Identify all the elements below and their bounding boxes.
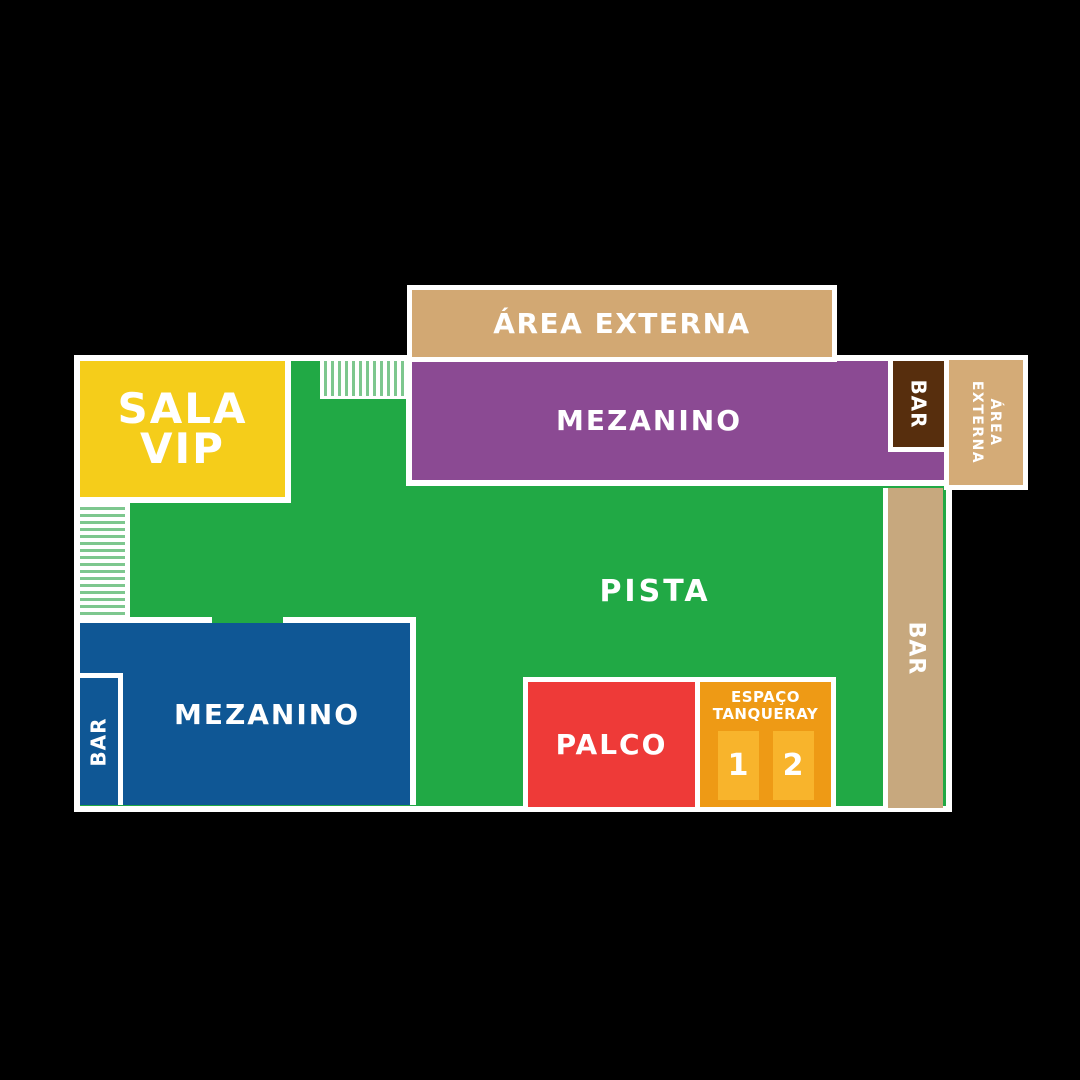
zone-bar-mezanino-label: BAR — [87, 717, 111, 766]
mezanino-lower-border-side — [410, 617, 416, 805]
espaco-booths: 1 2 — [718, 731, 814, 800]
zone-bar-mezanino: BAR — [80, 673, 123, 805]
zone-palco: PALCO — [523, 677, 700, 812]
zone-sala-vip-label-line2: VIP — [140, 429, 225, 469]
zone-area-externa-right: ÁREA EXTERNA — [944, 355, 1028, 490]
zone-bar-right-label: BAR — [903, 621, 928, 675]
zone-palco-label: PALCO — [556, 728, 668, 761]
zone-area-externa-top: ÁREA EXTERNA — [407, 285, 837, 362]
zone-mezanino-lower-label: MEZANINO — [174, 698, 360, 731]
zone-sala-vip: SALA VIP — [80, 361, 291, 503]
mezanino-lower-border-right-segment — [283, 617, 416, 623]
zone-area-externa-right-label: ÁREA EXTERNA — [969, 381, 1004, 464]
zone-espaco-tanqueray-label: ESPAÇO TANQUERAY — [713, 689, 819, 723]
zone-bar-annex-label: BAR — [907, 379, 931, 428]
zone-bar-annex: BAR — [888, 361, 945, 452]
stairs-top-hatch — [320, 361, 407, 399]
stairs-left-hatch — [80, 503, 130, 618]
zone-espaco-tanqueray: ESPAÇO TANQUERAY 1 2 — [695, 677, 836, 812]
zone-bar-right: BAR — [883, 488, 943, 808]
zone-mezanino-lower: MEZANINO — [80, 623, 410, 805]
zone-pista-label: PISTA — [545, 574, 765, 609]
zone-mezanino-upper: MEZANINO — [406, 361, 946, 486]
mezanino-lower-border-left-segment — [80, 617, 212, 623]
espaco-booth-1: 1 — [718, 731, 759, 800]
venue-floor-plan: MEZANINO PISTA BAR SALA VIP MEZANINO BAR… — [0, 0, 1080, 1080]
espaco-booth-2: 2 — [773, 731, 814, 800]
zone-mezanino-upper-label: MEZANINO — [556, 404, 742, 437]
zone-area-externa-top-label: ÁREA EXTERNA — [493, 307, 750, 340]
